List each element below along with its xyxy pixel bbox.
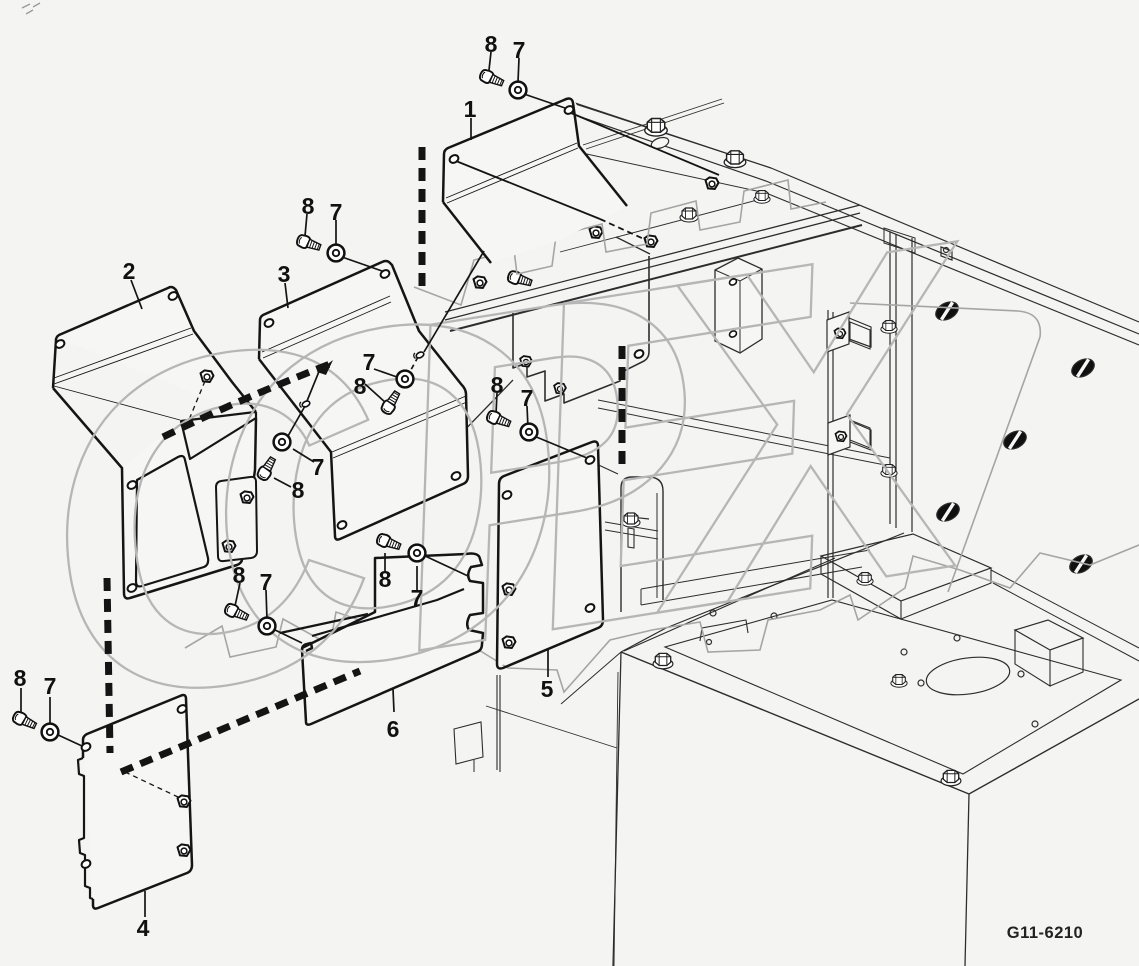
svg-text:1: 1 <box>464 96 477 122</box>
svg-text:7: 7 <box>521 385 534 411</box>
svg-text:8: 8 <box>233 562 246 588</box>
svg-text:8: 8 <box>14 665 27 691</box>
svg-text:8: 8 <box>491 372 504 398</box>
svg-text:8: 8 <box>302 193 315 219</box>
svg-text:4: 4 <box>137 915 150 941</box>
svg-text:G11-6210: G11-6210 <box>1007 924 1083 942</box>
svg-text:7: 7 <box>44 673 57 699</box>
svg-text:8: 8 <box>485 31 498 57</box>
svg-text:7: 7 <box>330 199 343 225</box>
svg-text:5: 5 <box>541 676 554 702</box>
svg-text:8: 8 <box>379 566 392 592</box>
svg-text:8: 8 <box>354 373 367 399</box>
svg-text:7: 7 <box>513 37 526 63</box>
svg-text:2: 2 <box>123 258 136 284</box>
svg-text:8: 8 <box>292 477 305 503</box>
svg-text:3: 3 <box>278 261 291 287</box>
svg-text:6: 6 <box>387 716 400 742</box>
svg-text:7: 7 <box>363 349 376 375</box>
svg-text:7: 7 <box>312 454 325 480</box>
svg-text:7: 7 <box>260 569 273 595</box>
svg-text:7: 7 <box>411 585 424 611</box>
